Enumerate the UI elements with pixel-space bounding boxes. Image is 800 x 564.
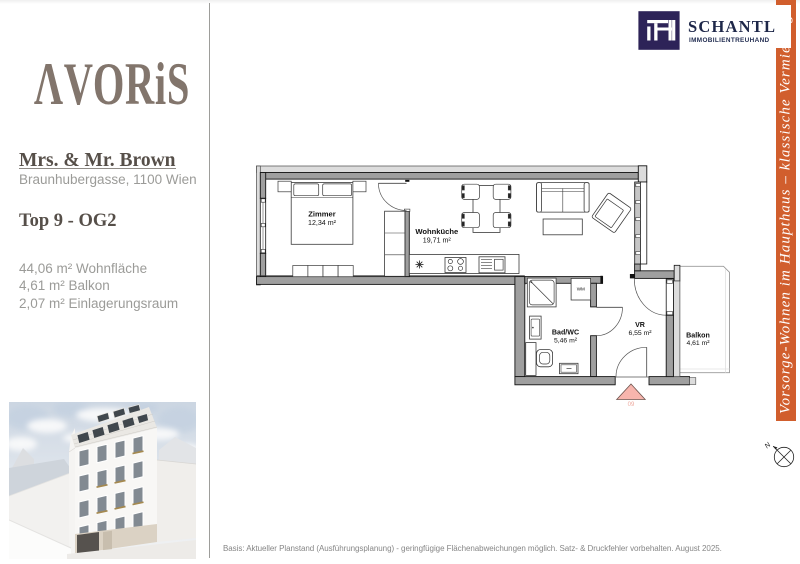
svg-text:12,34 m²: 12,34 m² — [308, 219, 337, 227]
svg-text:Bad/WC: Bad/WC — [552, 329, 579, 337]
svg-text:4,61 m²: 4,61 m² — [686, 340, 710, 347]
svg-text:6,55 m²: 6,55 m² — [628, 330, 652, 337]
svg-text:N: N — [764, 441, 773, 450]
svg-text:VR: VR — [635, 321, 645, 329]
svg-text:Wohnküche: Wohnküche — [415, 227, 458, 236]
svg-text:5,46 m²: 5,46 m² — [554, 338, 578, 345]
svg-text:19,71 m²: 19,71 m² — [423, 237, 452, 245]
svg-text:WM: WM — [577, 287, 585, 292]
svg-text:09: 09 — [628, 402, 635, 408]
svg-text:Zimmer: Zimmer — [308, 209, 335, 218]
svg-text:Balkon: Balkon — [686, 332, 710, 340]
